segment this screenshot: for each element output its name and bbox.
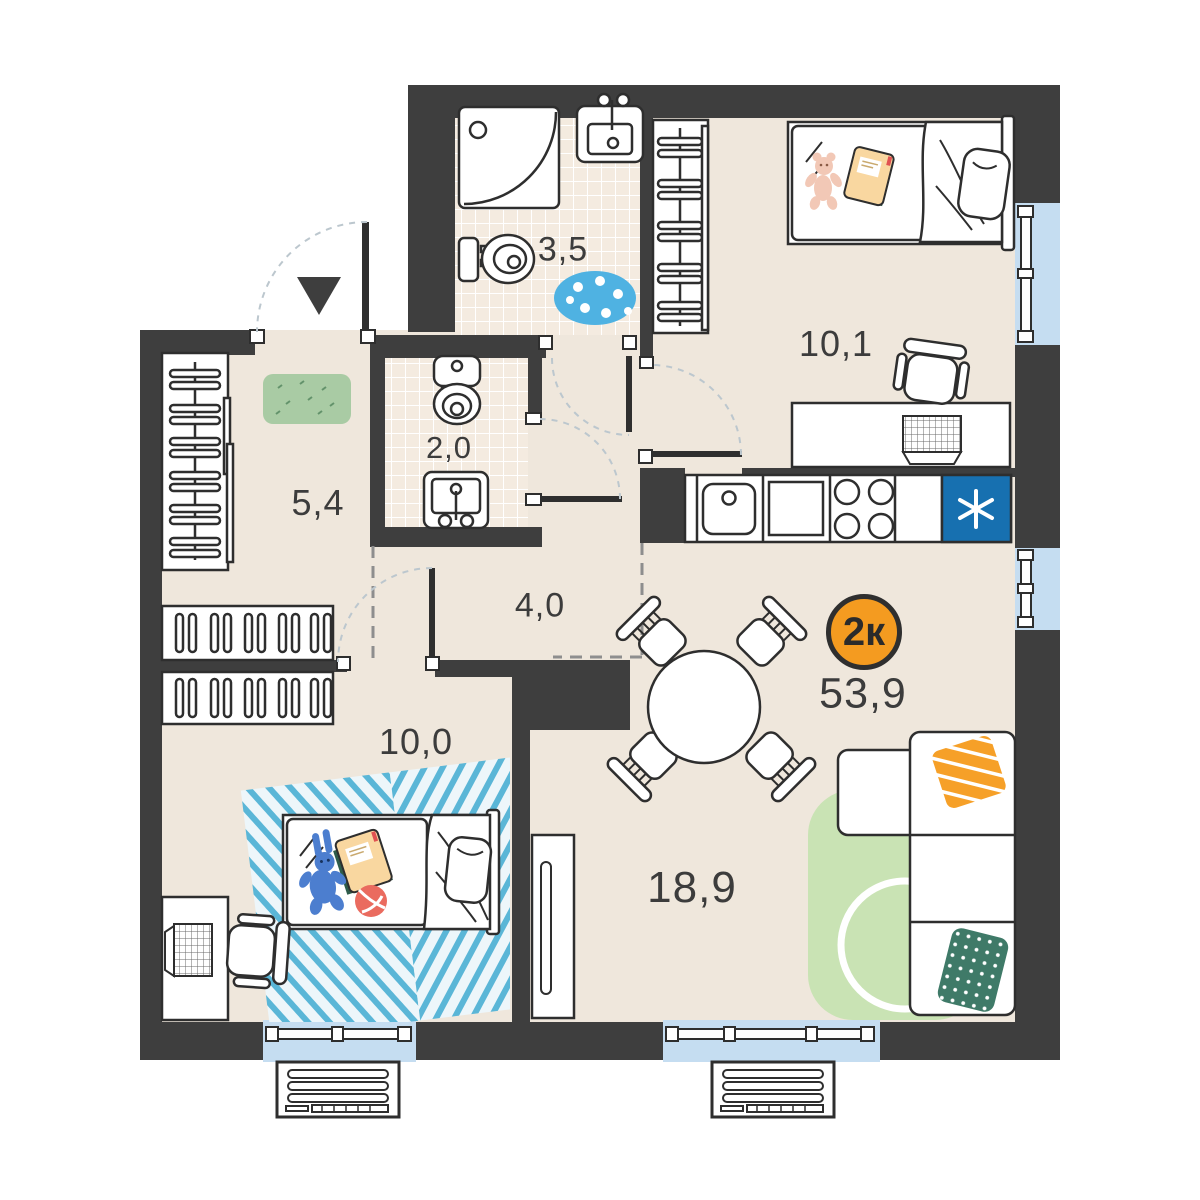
apartment-type-badge: 2к xyxy=(826,594,902,670)
bedroom-wardrobe-horizontal xyxy=(162,672,333,724)
bedroom-top-wardrobe xyxy=(653,120,708,333)
bathroom-door-leaf xyxy=(626,356,632,432)
room-area-wc: 2,0 xyxy=(426,430,472,466)
window-living-bottom xyxy=(663,1020,880,1062)
room-area-living: 18,9 xyxy=(647,863,737,913)
hall-wardrobe xyxy=(162,353,233,570)
desk-bottom xyxy=(162,897,228,1020)
room-area-hallway: 5,4 xyxy=(291,482,344,524)
room-area-bedroom-bottom: 10,0 xyxy=(379,721,453,763)
shower xyxy=(459,107,559,208)
bedroom-bottom-door-leaf xyxy=(429,568,435,662)
wc-toilet xyxy=(434,356,480,424)
dining-table xyxy=(648,651,760,763)
fridge xyxy=(942,475,1011,542)
entrance-door-leaf xyxy=(362,222,369,332)
room-area-corridor: 4,0 xyxy=(515,587,565,626)
ac-unit-right xyxy=(712,1062,834,1117)
desk-top xyxy=(792,403,1010,467)
hall-wardrobe-horizontal xyxy=(162,606,333,660)
ac-unit-left xyxy=(277,1062,399,1117)
room-area-bathroom: 3,5 xyxy=(538,231,588,270)
toy-ball xyxy=(355,885,387,917)
bathroom-rug xyxy=(554,271,636,325)
apartment-type-label: 2к xyxy=(843,610,885,655)
room-area-bedroom-top: 10,1 xyxy=(799,323,873,365)
hall-rug xyxy=(263,374,351,424)
wc-door-leaf xyxy=(542,496,622,502)
floor-plan-2k: 3,5 2,0 5,4 4,0 10,0 10,1 18,9 2к 53,9 xyxy=(0,0,1200,1200)
mirror-wardrobe xyxy=(532,835,574,1018)
floor-plan-drawing xyxy=(0,0,1200,1200)
bedroom-top-door-leaf xyxy=(650,451,742,457)
entrance-arrow-icon xyxy=(297,277,341,315)
bathroom-toilet xyxy=(459,235,534,283)
total-area-label: 53,9 xyxy=(819,670,907,719)
wc-sink xyxy=(424,472,488,528)
